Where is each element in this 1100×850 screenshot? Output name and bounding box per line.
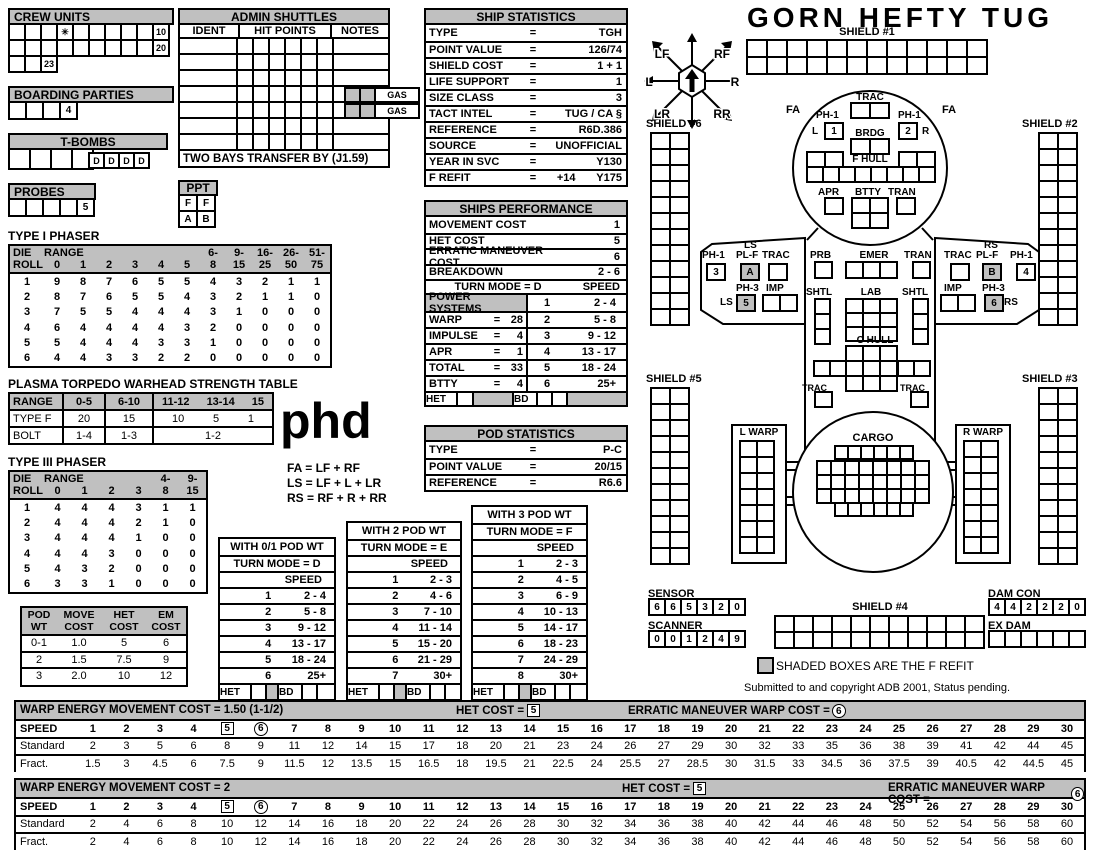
value-box[interactable]: 6	[666, 600, 680, 614]
hit-box[interactable]	[788, 41, 806, 56]
value-box[interactable]: D	[90, 154, 103, 167]
hit-box[interactable]	[90, 41, 104, 55]
hit-box[interactable]	[42, 25, 56, 39]
hit-box[interactable]	[122, 41, 136, 55]
hit-box[interactable]	[671, 485, 688, 499]
hit-box[interactable]	[914, 300, 927, 313]
hit-box[interactable]	[848, 58, 866, 73]
value-box[interactable]: 10	[154, 25, 168, 39]
hit-box[interactable]	[652, 246, 669, 260]
hit-box[interactable]	[741, 458, 756, 472]
hit-box[interactable]	[890, 633, 907, 647]
hit-box[interactable]	[741, 490, 756, 504]
hit-box[interactable]	[238, 87, 252, 101]
hit-box[interactable]	[909, 633, 926, 647]
hit-box[interactable]	[758, 490, 773, 504]
hit-box[interactable]	[1054, 632, 1068, 646]
hit-box[interactable]	[270, 119, 284, 133]
hit-box[interactable]	[671, 421, 688, 435]
hit-box[interactable]	[852, 140, 869, 153]
hit-box[interactable]	[840, 168, 854, 181]
hit-box[interactable]	[652, 230, 669, 244]
hit-box[interactable]	[503, 685, 518, 699]
hit-box[interactable]	[1040, 549, 1057, 563]
hit-box[interactable]	[652, 150, 669, 164]
hit-box[interactable]	[346, 89, 359, 101]
hit-box[interactable]	[652, 485, 669, 499]
hit-box[interactable]	[808, 41, 826, 56]
hit-box[interactable]	[318, 55, 332, 69]
hit-box[interactable]	[808, 168, 822, 181]
hit-box[interactable]	[429, 685, 444, 699]
hit-box[interactable]	[652, 294, 669, 308]
hit-box[interactable]	[238, 55, 252, 69]
hit-box[interactable]	[871, 199, 887, 212]
hit-box[interactable]	[1040, 437, 1057, 451]
hit-box[interactable]	[888, 168, 902, 181]
hit-box[interactable]	[928, 617, 945, 631]
hit-box[interactable]	[852, 104, 869, 117]
hit-box[interactable]	[914, 263, 929, 277]
hit-box[interactable]	[1022, 632, 1036, 646]
value-box[interactable]: 0	[730, 600, 744, 614]
hit-box[interactable]	[265, 685, 277, 699]
hit-box[interactable]	[652, 182, 669, 196]
hit-box[interactable]	[254, 135, 268, 149]
hit-box[interactable]	[472, 393, 512, 405]
value-box[interactable]: 20	[154, 41, 168, 55]
value-box[interactable]: 3	[708, 265, 724, 279]
hit-box[interactable]	[759, 659, 772, 672]
hit-box[interactable]	[671, 517, 688, 531]
hit-box[interactable]	[27, 103, 42, 118]
hit-box[interactable]	[788, 58, 806, 73]
hit-box[interactable]	[652, 469, 669, 483]
hit-box[interactable]	[871, 104, 888, 117]
hit-box[interactable]	[959, 296, 974, 310]
hit-box[interactable]	[652, 501, 669, 515]
hit-box[interactable]	[832, 476, 844, 488]
hit-box[interactable]	[270, 55, 284, 69]
value-box[interactable]: B	[984, 265, 1000, 279]
hit-box[interactable]	[898, 199, 914, 213]
value-box[interactable]: 4	[1006, 600, 1020, 614]
hit-box[interactable]	[180, 135, 236, 149]
hit-box[interactable]	[286, 87, 300, 101]
hit-box[interactable]	[856, 168, 870, 181]
hit-box[interactable]	[286, 135, 300, 149]
hit-box[interactable]	[652, 310, 669, 324]
hit-box[interactable]	[334, 71, 388, 85]
hit-box[interactable]	[982, 506, 997, 520]
hit-box[interactable]	[847, 377, 862, 390]
hit-box[interactable]	[90, 25, 104, 39]
hit-box[interactable]	[1040, 294, 1057, 308]
hit-box[interactable]	[1040, 198, 1057, 212]
hit-box[interactable]	[828, 58, 846, 73]
hit-box[interactable]	[965, 538, 980, 552]
value-box[interactable]: GAS	[376, 105, 418, 117]
hit-box[interactable]	[1059, 262, 1076, 276]
hit-box[interactable]	[868, 58, 886, 73]
value-box[interactable]: 4	[61, 103, 76, 118]
hit-box[interactable]	[1070, 632, 1084, 646]
hit-box[interactable]	[1059, 230, 1076, 244]
hit-box[interactable]	[42, 41, 56, 55]
hit-box[interactable]	[254, 55, 268, 69]
hit-box[interactable]	[652, 262, 669, 276]
hit-box[interactable]	[270, 71, 284, 85]
hit-box[interactable]	[1040, 405, 1057, 419]
hit-box[interactable]	[888, 58, 906, 73]
hit-box[interactable]	[566, 393, 626, 405]
hit-box[interactable]	[816, 330, 829, 343]
hit-box[interactable]	[947, 633, 964, 647]
value-box[interactable]: 6	[986, 296, 1002, 310]
value-box[interactable]: 2	[1038, 600, 1052, 614]
value-box[interactable]: ✳	[58, 25, 72, 39]
hit-box[interactable]	[847, 263, 862, 277]
hit-box[interactable]	[302, 103, 316, 117]
hit-box[interactable]	[768, 41, 786, 56]
value-box[interactable]: 1	[682, 632, 696, 646]
hit-box[interactable]	[1040, 421, 1057, 435]
hit-box[interactable]	[900, 153, 916, 166]
hit-box[interactable]	[238, 119, 252, 133]
hit-box[interactable]	[818, 476, 830, 488]
hit-box[interactable]	[10, 103, 25, 118]
hit-box[interactable]	[901, 504, 912, 515]
hit-box[interactable]	[44, 103, 59, 118]
hit-box[interactable]	[966, 633, 983, 647]
hit-box[interactable]	[872, 168, 886, 181]
hit-box[interactable]	[864, 263, 879, 277]
hit-box[interactable]	[378, 685, 393, 699]
hit-box[interactable]	[853, 199, 869, 212]
value-box[interactable]: 9	[730, 632, 744, 646]
hit-box[interactable]	[1059, 421, 1076, 435]
hit-box[interactable]	[832, 490, 844, 502]
hit-box[interactable]	[1040, 501, 1057, 515]
value-box[interactable]: D	[135, 154, 148, 167]
hit-box[interactable]	[1040, 134, 1057, 148]
hit-box[interactable]	[270, 87, 284, 101]
hit-box[interactable]	[671, 501, 688, 515]
hit-box[interactable]	[58, 41, 72, 55]
hit-box[interactable]	[318, 103, 332, 117]
hit-box[interactable]	[318, 135, 332, 149]
hit-box[interactable]	[816, 393, 831, 406]
hit-box[interactable]	[652, 278, 669, 292]
hit-box[interactable]	[741, 506, 756, 520]
hit-box[interactable]	[853, 214, 869, 227]
hit-box[interactable]	[1040, 453, 1057, 467]
hit-box[interactable]	[874, 490, 886, 502]
hit-box[interactable]	[122, 25, 136, 39]
hit-box[interactable]	[302, 87, 316, 101]
hit-box[interactable]	[1059, 517, 1076, 531]
value-box[interactable]: D	[120, 154, 133, 167]
hit-box[interactable]	[1040, 310, 1057, 324]
hit-box[interactable]	[982, 458, 997, 472]
value-box[interactable]: 4	[714, 632, 728, 646]
hit-box[interactable]	[916, 490, 928, 502]
hit-box[interactable]	[138, 41, 152, 55]
hit-box[interactable]	[1059, 294, 1076, 308]
hit-box[interactable]	[138, 25, 152, 39]
hit-box[interactable]	[671, 549, 688, 563]
hit-box[interactable]	[361, 89, 374, 101]
hit-box[interactable]	[833, 633, 850, 647]
hit-box[interactable]	[551, 393, 566, 405]
hit-box[interactable]	[947, 617, 964, 631]
hit-box[interactable]	[965, 522, 980, 536]
hit-box[interactable]	[881, 362, 896, 375]
hit-box[interactable]	[318, 87, 332, 101]
hit-box[interactable]	[928, 633, 945, 647]
hit-box[interactable]	[982, 522, 997, 536]
hit-box[interactable]	[741, 474, 756, 488]
hit-box[interactable]	[334, 135, 388, 149]
value-box[interactable]: 5	[682, 600, 696, 614]
hit-box[interactable]	[1040, 533, 1057, 547]
hit-box[interactable]	[920, 168, 934, 181]
hit-box[interactable]	[31, 150, 50, 168]
hit-box[interactable]	[748, 58, 766, 73]
hit-box[interactable]	[888, 41, 906, 56]
hit-box[interactable]	[846, 476, 858, 488]
hit-box[interactable]	[1040, 214, 1057, 228]
hit-box[interactable]	[741, 522, 756, 536]
hit-box[interactable]	[831, 362, 845, 375]
hit-box[interactable]	[902, 476, 914, 488]
hit-box[interactable]	[888, 490, 900, 502]
hit-box[interactable]	[671, 214, 688, 228]
value-box[interactable]: 4	[1018, 265, 1034, 279]
hit-box[interactable]	[860, 490, 872, 502]
value-box[interactable]: 4	[990, 600, 1004, 614]
hit-box[interactable]	[847, 362, 862, 375]
hit-box[interactable]	[928, 58, 946, 73]
hit-box[interactable]	[652, 437, 669, 451]
hit-box[interactable]	[818, 462, 830, 474]
hit-box[interactable]	[1059, 453, 1076, 467]
hit-box[interactable]	[671, 278, 688, 292]
hit-box[interactable]	[286, 71, 300, 85]
hit-box[interactable]	[982, 474, 997, 488]
hit-box[interactable]	[928, 41, 946, 56]
hit-box[interactable]	[871, 633, 888, 647]
hit-box[interactable]	[286, 119, 300, 133]
hit-box[interactable]	[44, 200, 59, 215]
hit-box[interactable]	[1038, 632, 1052, 646]
hit-box[interactable]	[180, 119, 236, 133]
hit-box[interactable]	[881, 300, 896, 312]
hit-box[interactable]	[875, 447, 886, 458]
hit-box[interactable]	[671, 134, 688, 148]
hit-box[interactable]	[764, 296, 779, 310]
hit-box[interactable]	[393, 685, 405, 699]
hit-box[interactable]	[816, 315, 829, 328]
hit-box[interactable]	[26, 25, 40, 39]
hit-box[interactable]	[982, 538, 997, 552]
hit-box[interactable]	[982, 442, 997, 456]
hit-box[interactable]	[10, 25, 24, 39]
hit-box[interactable]	[238, 135, 252, 149]
hit-box[interactable]	[881, 314, 896, 326]
hit-box[interactable]	[918, 153, 934, 166]
hit-box[interactable]	[776, 617, 793, 631]
hit-box[interactable]	[652, 214, 669, 228]
hit-box[interactable]	[948, 58, 966, 73]
hit-box[interactable]	[286, 55, 300, 69]
hit-box[interactable]	[741, 538, 756, 552]
hit-box[interactable]	[758, 506, 773, 520]
hit-box[interactable]	[1006, 632, 1020, 646]
hit-box[interactable]	[848, 41, 866, 56]
hit-box[interactable]	[652, 453, 669, 467]
value-box[interactable]: B	[198, 212, 214, 226]
hit-box[interactable]	[1059, 501, 1076, 515]
hit-box[interactable]	[852, 633, 869, 647]
hit-box[interactable]	[1059, 533, 1076, 547]
hit-box[interactable]	[671, 389, 688, 403]
hit-box[interactable]	[61, 200, 76, 215]
hit-box[interactable]	[10, 150, 29, 168]
hit-box[interactable]	[334, 55, 388, 69]
hit-box[interactable]	[864, 300, 879, 312]
hit-box[interactable]	[671, 469, 688, 483]
hit-box[interactable]	[888, 476, 900, 488]
hit-box[interactable]	[270, 103, 284, 117]
hit-box[interactable]	[874, 462, 886, 474]
hit-box[interactable]	[847, 347, 862, 360]
hit-box[interactable]	[518, 685, 530, 699]
hit-box[interactable]	[316, 685, 331, 699]
hit-box[interactable]	[1059, 485, 1076, 499]
hit-box[interactable]	[1059, 405, 1076, 419]
hit-box[interactable]	[286, 103, 300, 117]
hit-box[interactable]	[828, 41, 846, 56]
hit-box[interactable]	[10, 57, 24, 71]
hit-box[interactable]	[948, 41, 966, 56]
hit-box[interactable]	[833, 617, 850, 631]
hit-box[interactable]	[826, 199, 842, 213]
hit-box[interactable]	[1040, 166, 1057, 180]
hit-box[interactable]	[871, 140, 888, 153]
hit-box[interactable]	[758, 538, 773, 552]
hit-box[interactable]	[10, 41, 24, 55]
value-box[interactable]: F	[198, 196, 214, 210]
hit-box[interactable]	[899, 362, 913, 375]
hit-box[interactable]	[302, 135, 316, 149]
hit-box[interactable]	[1040, 485, 1057, 499]
hit-box[interactable]	[1040, 150, 1057, 164]
hit-box[interactable]	[652, 389, 669, 403]
hit-box[interactable]	[770, 265, 786, 279]
hit-box[interactable]	[180, 103, 236, 117]
hit-box[interactable]	[741, 442, 756, 456]
hit-box[interactable]	[758, 522, 773, 536]
hit-box[interactable]	[864, 347, 879, 360]
hit-box[interactable]	[847, 300, 862, 312]
hit-box[interactable]	[1059, 150, 1076, 164]
value-box[interactable]: D	[105, 154, 118, 167]
value-box[interactable]: F	[180, 196, 196, 210]
hit-box[interactable]	[815, 362, 829, 375]
hit-box[interactable]	[1059, 134, 1076, 148]
hit-box[interactable]	[912, 393, 927, 406]
value-box[interactable]: 0	[666, 632, 680, 646]
hit-box[interactable]	[965, 442, 980, 456]
hit-box[interactable]	[862, 447, 873, 458]
hit-box[interactable]	[982, 490, 997, 504]
hit-box[interactable]	[902, 490, 914, 502]
hit-box[interactable]	[1059, 182, 1076, 196]
hit-box[interactable]	[1059, 198, 1076, 212]
hit-box[interactable]	[10, 200, 25, 215]
value-box[interactable]: 6	[650, 600, 664, 614]
hit-box[interactable]	[106, 25, 120, 39]
hit-box[interactable]	[904, 168, 918, 181]
value-box[interactable]: GAS	[376, 89, 418, 101]
hit-box[interactable]	[871, 617, 888, 631]
hit-box[interactable]	[180, 55, 236, 69]
hit-box[interactable]	[758, 474, 773, 488]
hit-box[interactable]	[26, 57, 40, 71]
hit-box[interactable]	[908, 41, 926, 56]
hit-box[interactable]	[916, 476, 928, 488]
hit-box[interactable]	[968, 58, 986, 73]
hit-box[interactable]	[965, 474, 980, 488]
hit-box[interactable]	[536, 393, 551, 405]
hit-box[interactable]	[301, 685, 316, 699]
hit-box[interactable]	[652, 421, 669, 435]
hit-box[interactable]	[864, 377, 879, 390]
hit-box[interactable]	[916, 462, 928, 474]
hit-box[interactable]	[1040, 262, 1057, 276]
value-box[interactable]: 5	[78, 200, 93, 215]
hit-box[interactable]	[318, 39, 332, 53]
hit-box[interactable]	[671, 246, 688, 260]
value-box[interactable]: 0	[650, 632, 664, 646]
hit-box[interactable]	[346, 105, 359, 117]
hit-box[interactable]	[652, 549, 669, 563]
hit-box[interactable]	[875, 504, 886, 515]
hit-box[interactable]	[888, 447, 899, 458]
hit-box[interactable]	[836, 504, 847, 515]
hit-box[interactable]	[554, 685, 569, 699]
hit-box[interactable]	[864, 314, 879, 326]
hit-box[interactable]	[860, 476, 872, 488]
hit-box[interactable]	[836, 447, 847, 458]
hit-box[interactable]	[238, 103, 252, 117]
hit-box[interactable]	[816, 300, 829, 313]
hit-box[interactable]	[808, 58, 826, 73]
hit-box[interactable]	[914, 330, 927, 343]
hit-box[interactable]	[250, 685, 265, 699]
hit-box[interactable]	[334, 39, 388, 53]
hit-box[interactable]	[874, 476, 886, 488]
hit-box[interactable]	[671, 166, 688, 180]
hit-box[interactable]	[180, 87, 236, 101]
hit-box[interactable]	[254, 87, 268, 101]
hit-box[interactable]	[671, 262, 688, 276]
hit-box[interactable]	[270, 39, 284, 53]
hit-box[interactable]	[1040, 517, 1057, 531]
hit-box[interactable]	[808, 153, 824, 166]
hit-box[interactable]	[832, 462, 844, 474]
